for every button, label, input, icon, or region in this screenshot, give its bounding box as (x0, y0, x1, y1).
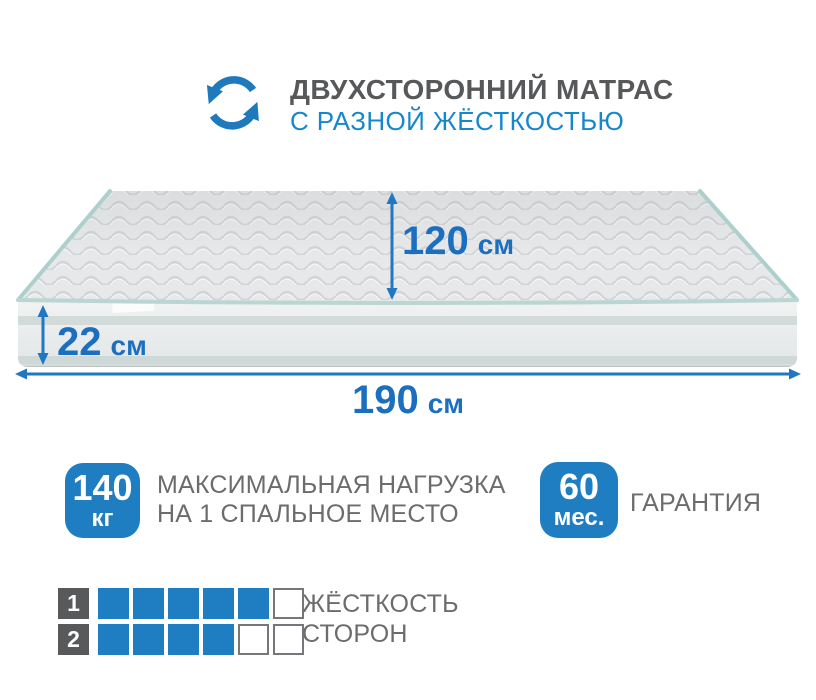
firmness-cell-filled (133, 588, 164, 619)
height-unit: см (111, 332, 147, 360)
rotation-arrows-icon (202, 71, 264, 137)
depth-dimension-label: 120 см (402, 221, 514, 261)
height-value: 22 (57, 322, 102, 362)
length-unit: см (428, 390, 464, 418)
length-value: 190 (352, 380, 419, 420)
max-load-unit: кг (91, 506, 113, 531)
firmness-label-line2: СТОРОН (302, 619, 459, 649)
firmness-cell-filled (168, 624, 199, 655)
depth-unit: см (478, 231, 514, 259)
max-load-value: 140 (72, 470, 132, 506)
mattress-infographic: ДВУХСТОРОННИЙ МАТРАС С РАЗНОЙ ЖЁСТКОСТЬЮ (0, 0, 816, 700)
firmness-cell-filled (133, 624, 164, 655)
page-subtitle: С РАЗНОЙ ЖЁСТКОСТЬЮ (290, 106, 624, 137)
firmness-cells (98, 588, 304, 619)
height-dimension-label: 22 см (57, 322, 147, 362)
firmness-row: 2 (58, 624, 304, 655)
max-load-badge: 140 кг (65, 463, 140, 538)
warranty-value: 60 (559, 469, 599, 505)
max-load-description: МАКСИМАЛЬНАЯ НАГРУЗКА НА 1 СПАЛЬНОЕ МЕСТ… (157, 471, 506, 529)
warranty-label: ГАРАНТИЯ (630, 489, 761, 518)
firmness-cell-filled (238, 588, 269, 619)
firmness-label-line1: ЖЁСТКОСТЬ (302, 589, 459, 619)
warranty-badge: 60 мес. (540, 462, 618, 538)
warranty-unit: мес. (554, 505, 605, 530)
firmness-cells (98, 624, 304, 655)
firmness-scale: 1 2 (58, 588, 304, 655)
firmness-cell-filled (203, 588, 234, 619)
firmness-row: 1 (58, 588, 304, 619)
length-dimension-label: 190 см (0, 380, 816, 420)
firmness-cell-filled (203, 624, 234, 655)
firmness-cell-empty (238, 624, 269, 655)
firmness-label: ЖЁСТКОСТЬ СТОРОН (302, 589, 459, 649)
depth-value: 120 (402, 221, 469, 261)
firmness-cell-empty (273, 588, 304, 619)
max-load-line2: НА 1 СПАЛЬНОЕ МЕСТО (157, 500, 506, 529)
page-title: ДВУХСТОРОННИЙ МАТРАС (290, 74, 674, 106)
max-load-line1: МАКСИМАЛЬНАЯ НАГРУЗКА (157, 471, 506, 500)
firmness-cell-filled (98, 588, 129, 619)
side-number: 1 (58, 588, 89, 619)
firmness-cell-filled (168, 588, 199, 619)
firmness-cell-empty (273, 624, 304, 655)
side-number: 2 (58, 624, 89, 655)
firmness-cell-filled (98, 624, 129, 655)
